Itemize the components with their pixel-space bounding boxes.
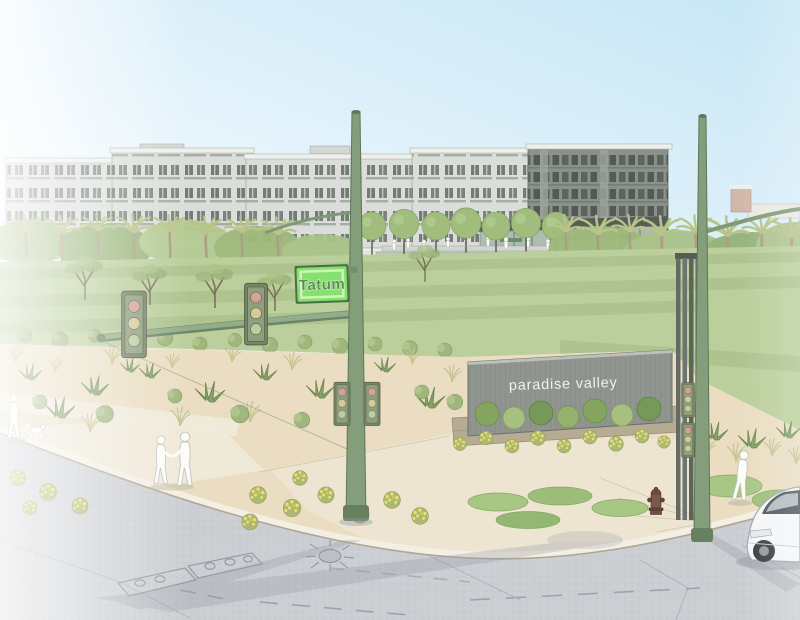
rendering-canvas: paradise valley bbox=[0, 0, 800, 620]
monument-sign-text: paradise valley bbox=[509, 375, 618, 394]
distant-tower bbox=[731, 188, 751, 212]
traffic-signal-right-upper bbox=[682, 383, 695, 418]
traffic-signal-right-lower bbox=[682, 423, 695, 458]
tatum-street-sign: Tatum bbox=[294, 264, 358, 304]
rendering-scene: paradise valley bbox=[0, 0, 800, 620]
traffic-signal-pole-cluster-b bbox=[364, 382, 380, 425]
traffic-signal-hanging-right bbox=[245, 283, 268, 345]
traffic-signal-pole-cluster-a bbox=[334, 382, 350, 425]
traffic-signal-hanging-left bbox=[122, 291, 147, 358]
street-sign-text: Tatum bbox=[299, 276, 346, 295]
